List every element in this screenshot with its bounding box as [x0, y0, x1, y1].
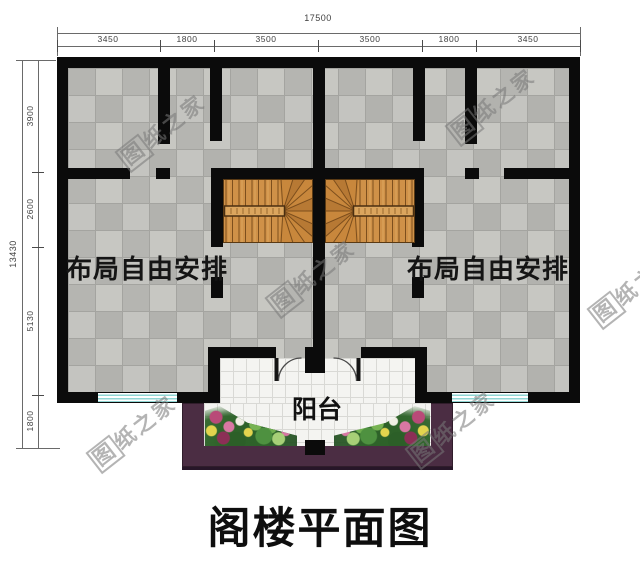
wall-outer-right [569, 57, 580, 403]
dim-tick [422, 40, 423, 52]
dim-top-seg: 1800 [177, 34, 198, 44]
dim-tick [32, 172, 44, 173]
door-leaf-right [357, 358, 361, 381]
balcony-doors [260, 350, 380, 390]
dim-tick [32, 247, 44, 248]
wall-balcony-bottom-stub [305, 440, 325, 455]
room-label-right: 布局自由安排 [407, 249, 569, 286]
wall-outer-top [57, 57, 580, 68]
door-leaf-left [275, 358, 279, 381]
dim-ext-line [16, 60, 56, 61]
dim-tick [318, 40, 319, 52]
balcony-label: 阳台 [292, 390, 342, 426]
dim-top-seg: 3500 [256, 34, 277, 44]
wall-outer-left [57, 57, 68, 403]
dim-tick [476, 40, 477, 52]
room-label-left: 布局自由安排 [66, 249, 228, 286]
dim-left-total: 13430 [8, 240, 18, 268]
dim-left-seg: 1800 [25, 411, 35, 432]
dim-top-total: 17500 [304, 13, 332, 23]
wall-interior [413, 68, 425, 141]
dim-top-seg: 3450 [518, 34, 539, 44]
staircase-right [325, 179, 415, 243]
dim-line [22, 60, 23, 448]
door-swing-arc-left [279, 358, 302, 381]
dim-left-seg: 5130 [25, 311, 35, 332]
dim-tick [160, 40, 161, 52]
wall-balcony-side-left [208, 347, 220, 403]
wall-central [313, 68, 325, 358]
page-title: 阁楼平面图 [208, 494, 433, 556]
dim-ext-line [16, 448, 60, 449]
door-swing-arc-right [334, 358, 357, 381]
dim-line [38, 60, 39, 448]
wall-balcony-side-right [415, 347, 427, 403]
floor-plan: 17500 3450 1800 3500 3500 1800 3450 1343… [0, 0, 640, 572]
dim-tick [214, 40, 215, 52]
staircase-left [223, 179, 313, 243]
dim-tick [32, 395, 44, 396]
wall-stair-side-left [211, 168, 223, 247]
dim-tick [57, 40, 58, 52]
wall-stair-top-right [325, 168, 424, 179]
dim-top-seg: 3500 [360, 34, 381, 44]
wall-interior [156, 168, 170, 179]
wall-interior [465, 168, 479, 179]
wall-interior [504, 168, 580, 179]
watermark: 图纸之家 [585, 244, 640, 330]
wall-stair-top-left [211, 168, 313, 179]
dim-tick [580, 40, 581, 52]
wall-interior [57, 168, 130, 179]
dim-left-seg: 3900 [25, 106, 35, 127]
dim-top-seg: 1800 [439, 34, 460, 44]
dim-left-seg: 2600 [25, 199, 35, 220]
dim-top-seg: 3450 [98, 34, 119, 44]
wall-interior [210, 68, 222, 141]
dim-line [57, 33, 580, 34]
